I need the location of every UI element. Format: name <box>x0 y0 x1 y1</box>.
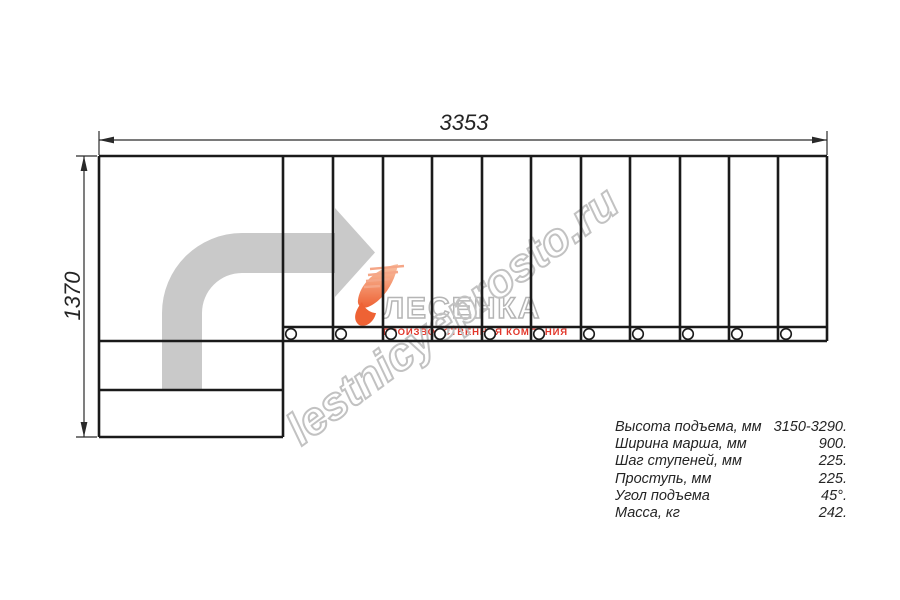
spec-label: Масса, кг <box>615 505 680 522</box>
height-dimension-label: 1370 <box>60 271 85 321</box>
spec-value: 3150-3290. <box>774 419 847 436</box>
spec-row: Ширина марша, мм 900. <box>615 436 847 453</box>
support-post-circle <box>534 329 545 340</box>
spec-value: 225. <box>819 471 847 488</box>
spec-row: Шаг ступеней, мм 225. <box>615 453 847 470</box>
dimension-arrow-left-icon <box>99 137 114 144</box>
dimension-arrow-up-icon <box>81 156 88 171</box>
dimension-left: 1370 <box>60 156 97 437</box>
tread-lines <box>333 156 778 341</box>
spec-row: Высота подъема, мм 3150-3290. <box>615 419 847 436</box>
support-post-circle <box>485 329 496 340</box>
stair-outline <box>99 156 827 437</box>
support-post-circle <box>286 329 297 340</box>
support-post-circles <box>286 329 792 340</box>
spec-row: Угол подъема 45°. <box>615 488 847 505</box>
support-post-circle <box>732 329 743 340</box>
stair-drawing-canvas: ЛЕСЕНКА ПРОИЗВОДСТВЕННАЯ КОМПАНИЯ lestni… <box>0 0 900 600</box>
spec-label: Шаг ступеней, мм <box>615 453 742 470</box>
spec-row: Проступь, мм 225. <box>615 471 847 488</box>
dimension-arrow-right-icon <box>812 137 827 144</box>
support-post-circle <box>683 329 694 340</box>
support-post-circle <box>435 329 446 340</box>
spec-row: Масса, кг 242. <box>615 505 847 522</box>
spec-value: 242. <box>819 505 847 522</box>
spec-label: Ширина марша, мм <box>615 436 747 453</box>
spec-value: 225. <box>819 453 847 470</box>
spec-table: Высота подъема, мм 3150-3290. Ширина мар… <box>615 419 847 522</box>
support-post-circle <box>584 329 595 340</box>
support-post-circle <box>386 329 397 340</box>
spec-label: Высота подъема, мм <box>615 419 762 436</box>
dimension-top: 3353 <box>99 110 827 155</box>
spec-value: 900. <box>819 436 847 453</box>
support-post-circle <box>781 329 792 340</box>
support-post-circle <box>633 329 644 340</box>
width-dimension-label: 3353 <box>440 110 490 135</box>
support-post-circle <box>336 329 347 340</box>
spec-label: Проступь, мм <box>615 471 711 488</box>
dimension-arrow-down-icon <box>81 422 88 437</box>
spec-value: 45°. <box>821 488 847 505</box>
spec-label: Угол подъема <box>615 488 710 505</box>
